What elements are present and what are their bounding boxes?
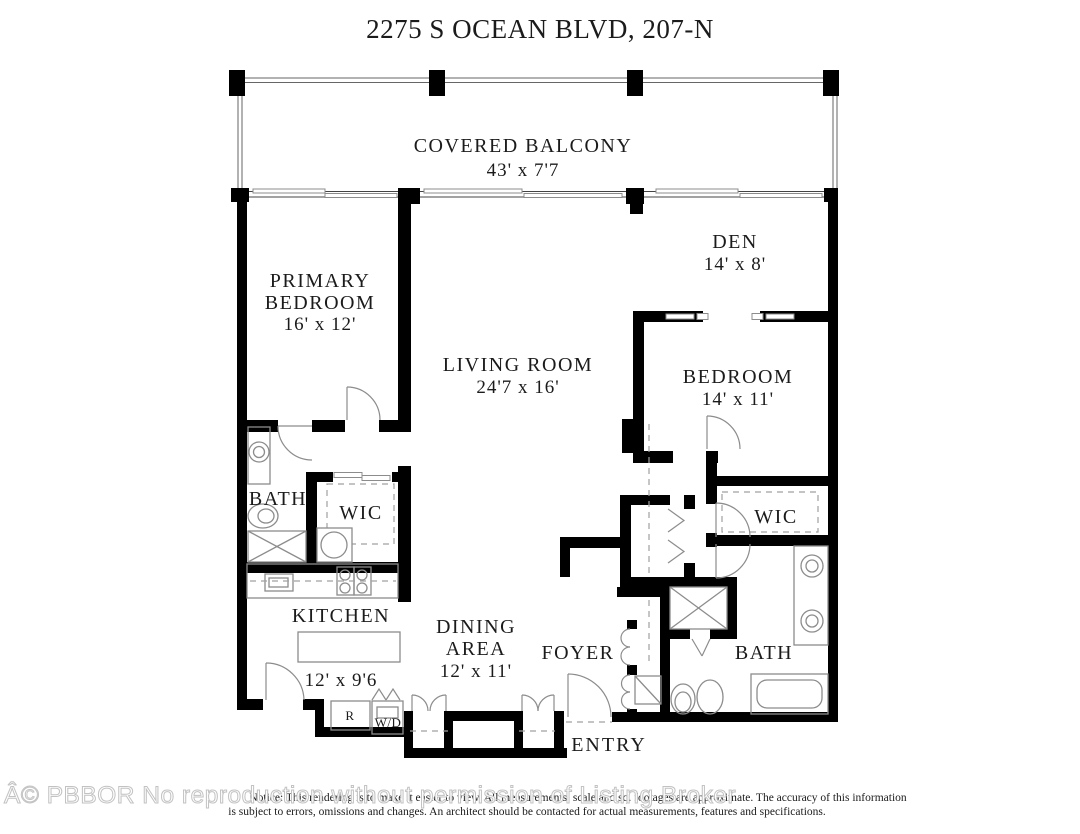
label-covered-balcony: COVERED BALCONY	[414, 135, 633, 157]
floor-plan-canvas: 2275 S OCEAN BLVD, 207-N	[0, 0, 1080, 834]
dims-kitchen: 12' x 9'6	[305, 670, 378, 691]
dims-covered-balcony: 43' x 7'7	[487, 160, 560, 181]
label-foyer: FOYER	[541, 642, 614, 664]
dims-living-room: 24'7 x 16'	[476, 377, 559, 398]
label-bath-right: BATH	[735, 642, 793, 664]
label-den: DEN	[712, 231, 758, 253]
building-top-wall	[231, 188, 838, 204]
label-entry: ENTRY	[571, 734, 647, 756]
label-dining-2: AREA	[446, 638, 506, 660]
floor-plan-page: 2275 S OCEAN BLVD, 207-N	[0, 0, 1080, 834]
label-dining-1: DINING	[436, 616, 516, 638]
label-living-room: LIVING ROOM	[443, 354, 593, 376]
footer: Notice: This rendering is to make it eas…	[4, 782, 907, 818]
label-washer-dryer: W/D	[375, 715, 402, 730]
dims-den: 14' x 8'	[704, 254, 766, 275]
dims-dining: 12' x 11'	[440, 661, 512, 682]
label-wic-right: WIC	[754, 506, 797, 528]
label-primary-bedroom-2: BEDROOM	[265, 292, 376, 314]
plan-title: 2275 S OCEAN BLVD, 207-N	[366, 14, 714, 44]
label-kitchen: KITCHEN	[292, 605, 390, 627]
label-primary-bedroom-1: PRIMARY	[270, 270, 371, 292]
label-bath-left: BATH	[249, 488, 307, 510]
broker-watermark: Â© PBBOR No reproduction without permiss…	[4, 782, 736, 809]
label-wic-left: WIC	[339, 502, 382, 524]
label-refrigerator: R	[345, 708, 354, 723]
dims-primary-bedroom: 16' x 12'	[284, 314, 357, 335]
label-bedroom: BEDROOM	[683, 366, 794, 388]
room-labels: COVERED BALCONY 43' x 7'7 PRIMARY BEDROO…	[249, 135, 798, 756]
dims-bedroom: 14' x 11'	[702, 389, 774, 410]
